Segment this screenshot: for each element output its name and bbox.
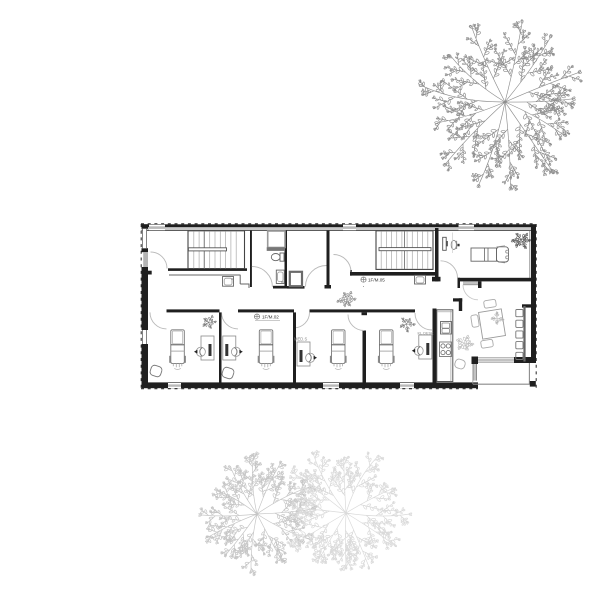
svg-text:MED.S: MED.S	[294, 337, 307, 342]
svg-text:1F/M.02: 1F/M.02	[262, 315, 279, 320]
svg-text:1F/M.05: 1F/M.05	[368, 278, 385, 283]
